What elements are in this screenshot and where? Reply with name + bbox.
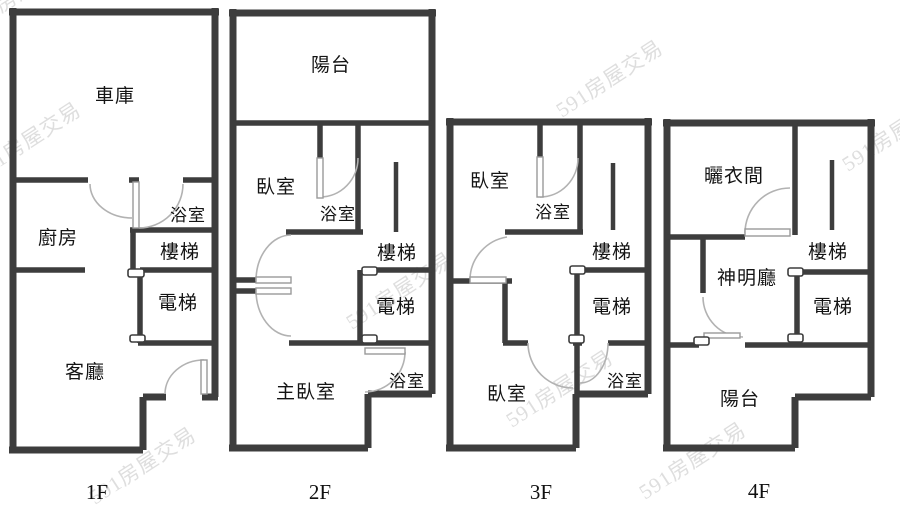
room-label-stairs-3f: 樓梯 bbox=[592, 241, 632, 263]
room-label-elevator-2f: 電梯 bbox=[376, 296, 416, 318]
room-label-bath-upper-3f: 浴室 bbox=[535, 203, 571, 222]
floor-plan-image: 591房屋交易 591房屋交易 591房屋交易 591房屋交易 591房屋交易 … bbox=[0, 0, 900, 512]
floor-label-3f: 3F bbox=[530, 480, 552, 504]
elevator-door-symbol-3f bbox=[569, 335, 584, 343]
elevator-door-symbol-1f bbox=[130, 335, 145, 342]
room-label-elevator-3f: 電梯 bbox=[592, 296, 632, 318]
entry-door-leaf-1f bbox=[201, 360, 207, 394]
bath-lower-door-leaf-2f bbox=[365, 348, 405, 354]
room-label-stairs-2f: 樓梯 bbox=[377, 242, 417, 264]
room-label-bath-lower-3f: 浴室 bbox=[607, 372, 643, 391]
drying-door-leaf-4f bbox=[745, 229, 790, 236]
room-label-stairs-4f: 樓梯 bbox=[808, 241, 848, 263]
room-label-drying-4f: 曬衣間 bbox=[704, 165, 764, 187]
room-label-bedroom-upper-3f: 臥室 bbox=[470, 170, 510, 192]
room-label-elevator-1f: 電梯 bbox=[158, 292, 198, 314]
room-label-bedroom-lower-3f: 臥室 bbox=[487, 383, 527, 405]
room-label-balcony-4f: 陽台 bbox=[720, 388, 760, 410]
room-label-bath-upper-2f: 浴室 bbox=[320, 205, 356, 224]
floor-label-4f: 4F bbox=[748, 479, 770, 503]
room-label-garage: 車庫 bbox=[95, 85, 135, 107]
room-label-kitchen: 廚房 bbox=[38, 226, 78, 249]
room-label-bath-1f: 浴室 bbox=[170, 206, 206, 225]
door-swing-arcs-4f bbox=[703, 188, 790, 337]
floor-label-2f: 2F bbox=[309, 480, 331, 504]
stair-door-symbol-1f bbox=[128, 269, 144, 277]
room-label-living: 客廳 bbox=[65, 361, 105, 383]
elevator-door-symbol-4f bbox=[788, 334, 803, 342]
floor-plan-3f: 臥室 浴室 樓梯 電梯 臥室 浴室 3F bbox=[446, 118, 652, 504]
room-label-elevator-4f: 電梯 bbox=[813, 296, 853, 318]
bath-door-leaf-2f bbox=[317, 158, 323, 198]
bath-door-leaf-3f bbox=[537, 157, 543, 197]
bath-door-leaf-1f bbox=[133, 182, 139, 228]
elevator-door-symbol-2f bbox=[362, 335, 377, 343]
floor-plan-4f: 曬衣間 神明廳 樓梯 電梯 陽台 4F bbox=[663, 119, 875, 503]
watermark-text: 591房屋交易 bbox=[635, 417, 751, 504]
floor-label-1f: 1F bbox=[86, 480, 108, 504]
bedroom-door-leaf-2f bbox=[256, 277, 291, 283]
bedroom-door-leaf-3f bbox=[470, 277, 506, 283]
room-label-stairs-1f: 樓梯 bbox=[160, 241, 200, 263]
floor-plan-2f: 陽台 臥室 浴室 樓梯 電梯 主臥室 浴室 2F bbox=[229, 9, 436, 504]
floor-plan-canvas: 591房屋交易 591房屋交易 591房屋交易 591房屋交易 591房屋交易 … bbox=[0, 0, 900, 512]
watermark-text: 591房屋交易 bbox=[552, 35, 668, 122]
room-label-balcony-2f: 陽台 bbox=[311, 54, 351, 76]
room-label-master-2f: 主臥室 bbox=[276, 381, 336, 403]
room-label-shrine-4f: 神明廳 bbox=[717, 267, 777, 289]
master-door-leaf-2f bbox=[256, 288, 291, 294]
room-label-bedroom-2f: 臥室 bbox=[256, 176, 296, 198]
balcony-door-symbol-4f bbox=[694, 337, 709, 345]
stair-door-symbol-2f bbox=[362, 267, 377, 275]
stair-door-symbol-4f bbox=[788, 268, 803, 276]
room-label-bath-lower-2f: 浴室 bbox=[389, 372, 425, 391]
balcony-door-leaf-4f bbox=[704, 333, 740, 338]
stair-door-symbol-3f bbox=[570, 266, 585, 274]
